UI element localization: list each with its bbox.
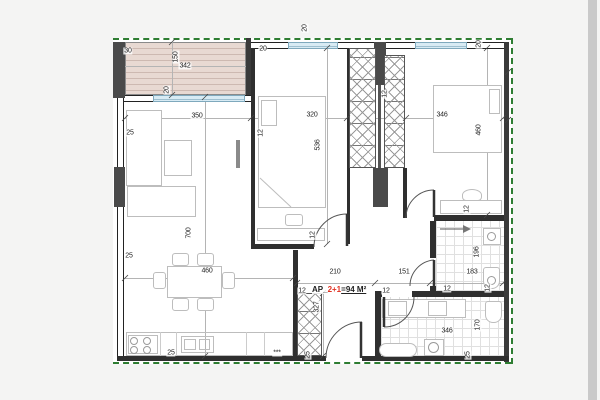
dimension-line xyxy=(297,283,504,284)
apartment-prefix: AP_ xyxy=(312,285,328,294)
washbasin xyxy=(388,301,407,316)
floor-plan: 30 150 342 20 350 25 12 320 536 20 20 34… xyxy=(0,0,600,400)
wall xyxy=(117,356,326,361)
concrete-column xyxy=(114,167,125,207)
dimension-label: 170 xyxy=(475,318,482,331)
shaft xyxy=(349,48,376,168)
chair xyxy=(172,253,189,266)
dimension-label: 320 xyxy=(305,112,318,119)
dimension-label: 183 xyxy=(465,269,478,276)
dimension-label: 12 xyxy=(381,288,390,295)
sink-basin xyxy=(199,339,210,350)
dimension-label: 350 xyxy=(190,113,203,120)
toilet xyxy=(485,301,502,323)
tv xyxy=(236,140,240,168)
chair xyxy=(172,298,189,311)
apartment-unit: 2+1 xyxy=(328,285,342,294)
dimension-label: 12 xyxy=(464,204,471,213)
dimension-label: 20 xyxy=(302,23,309,32)
window xyxy=(415,42,467,49)
apartment-area: =94 M² xyxy=(341,285,366,294)
dimension-label: 20 xyxy=(476,39,483,48)
stove-burner xyxy=(143,337,151,345)
dimension-label: 460 xyxy=(476,123,483,136)
dimension-label: 12 xyxy=(485,283,492,292)
insulation-line xyxy=(511,38,513,364)
dimension-line xyxy=(327,48,328,244)
dimension-label: 327 xyxy=(314,300,321,313)
washing-machine-drum xyxy=(428,342,439,353)
dimension-label: 700 xyxy=(186,226,193,239)
dining-table xyxy=(167,266,222,298)
washbasin xyxy=(428,301,447,316)
dimension-label: 342 xyxy=(178,63,191,70)
stove-burner xyxy=(130,346,138,354)
dimension-label: 25 xyxy=(125,130,134,137)
dimension-label: 151 xyxy=(397,269,410,276)
dimension-label: 12 xyxy=(382,89,389,98)
wall xyxy=(434,215,504,221)
dimension-label: 25 xyxy=(305,350,312,359)
sofa xyxy=(126,110,162,186)
counter-divider xyxy=(264,332,265,356)
concrete-column xyxy=(373,168,388,207)
pillow xyxy=(489,89,500,114)
shaft xyxy=(384,55,405,168)
chair xyxy=(197,298,214,311)
sofa xyxy=(127,186,196,217)
counter-divider xyxy=(160,332,161,356)
chair xyxy=(462,189,482,201)
wall xyxy=(403,168,407,218)
coffee-table xyxy=(164,140,192,176)
counter-divider xyxy=(176,332,177,356)
dimension-label: 25 xyxy=(166,350,175,357)
dimension-line xyxy=(323,293,324,356)
dimension-label: 12 xyxy=(297,288,306,295)
dimension-label: 460 xyxy=(200,268,213,275)
dimension-label: 346 xyxy=(440,328,453,335)
apartment-area-label: AP_2+1=94 M² xyxy=(312,286,366,294)
stove-burner xyxy=(130,337,138,345)
chair xyxy=(197,253,214,266)
wall xyxy=(117,97,124,356)
dimension-line xyxy=(205,97,206,356)
chair xyxy=(153,272,166,289)
dimension-label: 12 xyxy=(310,230,317,239)
page-edge xyxy=(588,0,597,400)
window xyxy=(288,42,338,49)
dimension-label: 536 xyxy=(315,138,322,151)
stool xyxy=(285,214,303,226)
dimension-label: 346 xyxy=(435,112,448,119)
dimension-label: *** xyxy=(272,350,282,357)
dimension-label: 196 xyxy=(474,245,481,258)
dimension-label: 30 xyxy=(123,48,132,55)
window xyxy=(153,95,245,102)
dimension-label: 12 xyxy=(442,286,451,293)
chair xyxy=(222,272,235,289)
insulation-line xyxy=(113,38,512,40)
insulation-line xyxy=(113,362,511,364)
pillow xyxy=(261,100,277,126)
wall xyxy=(430,221,436,258)
wall xyxy=(124,95,153,102)
stove-burner xyxy=(143,346,151,354)
wall xyxy=(251,48,255,244)
counter-divider xyxy=(246,332,247,356)
wall xyxy=(504,42,509,362)
wall xyxy=(251,244,314,249)
wall xyxy=(467,42,508,49)
dimension-label: 25 xyxy=(124,253,133,260)
dimension-label: 20 xyxy=(164,85,171,94)
desk xyxy=(440,200,502,214)
dimension-label: 20 xyxy=(258,46,267,53)
dimension-label: 210 xyxy=(328,269,341,276)
sink-basin xyxy=(184,339,196,350)
dimension-label: 12 xyxy=(258,128,265,137)
dimension-label: 25 xyxy=(465,350,472,359)
bathtub xyxy=(379,343,417,357)
washbasin-bowl xyxy=(487,232,496,241)
